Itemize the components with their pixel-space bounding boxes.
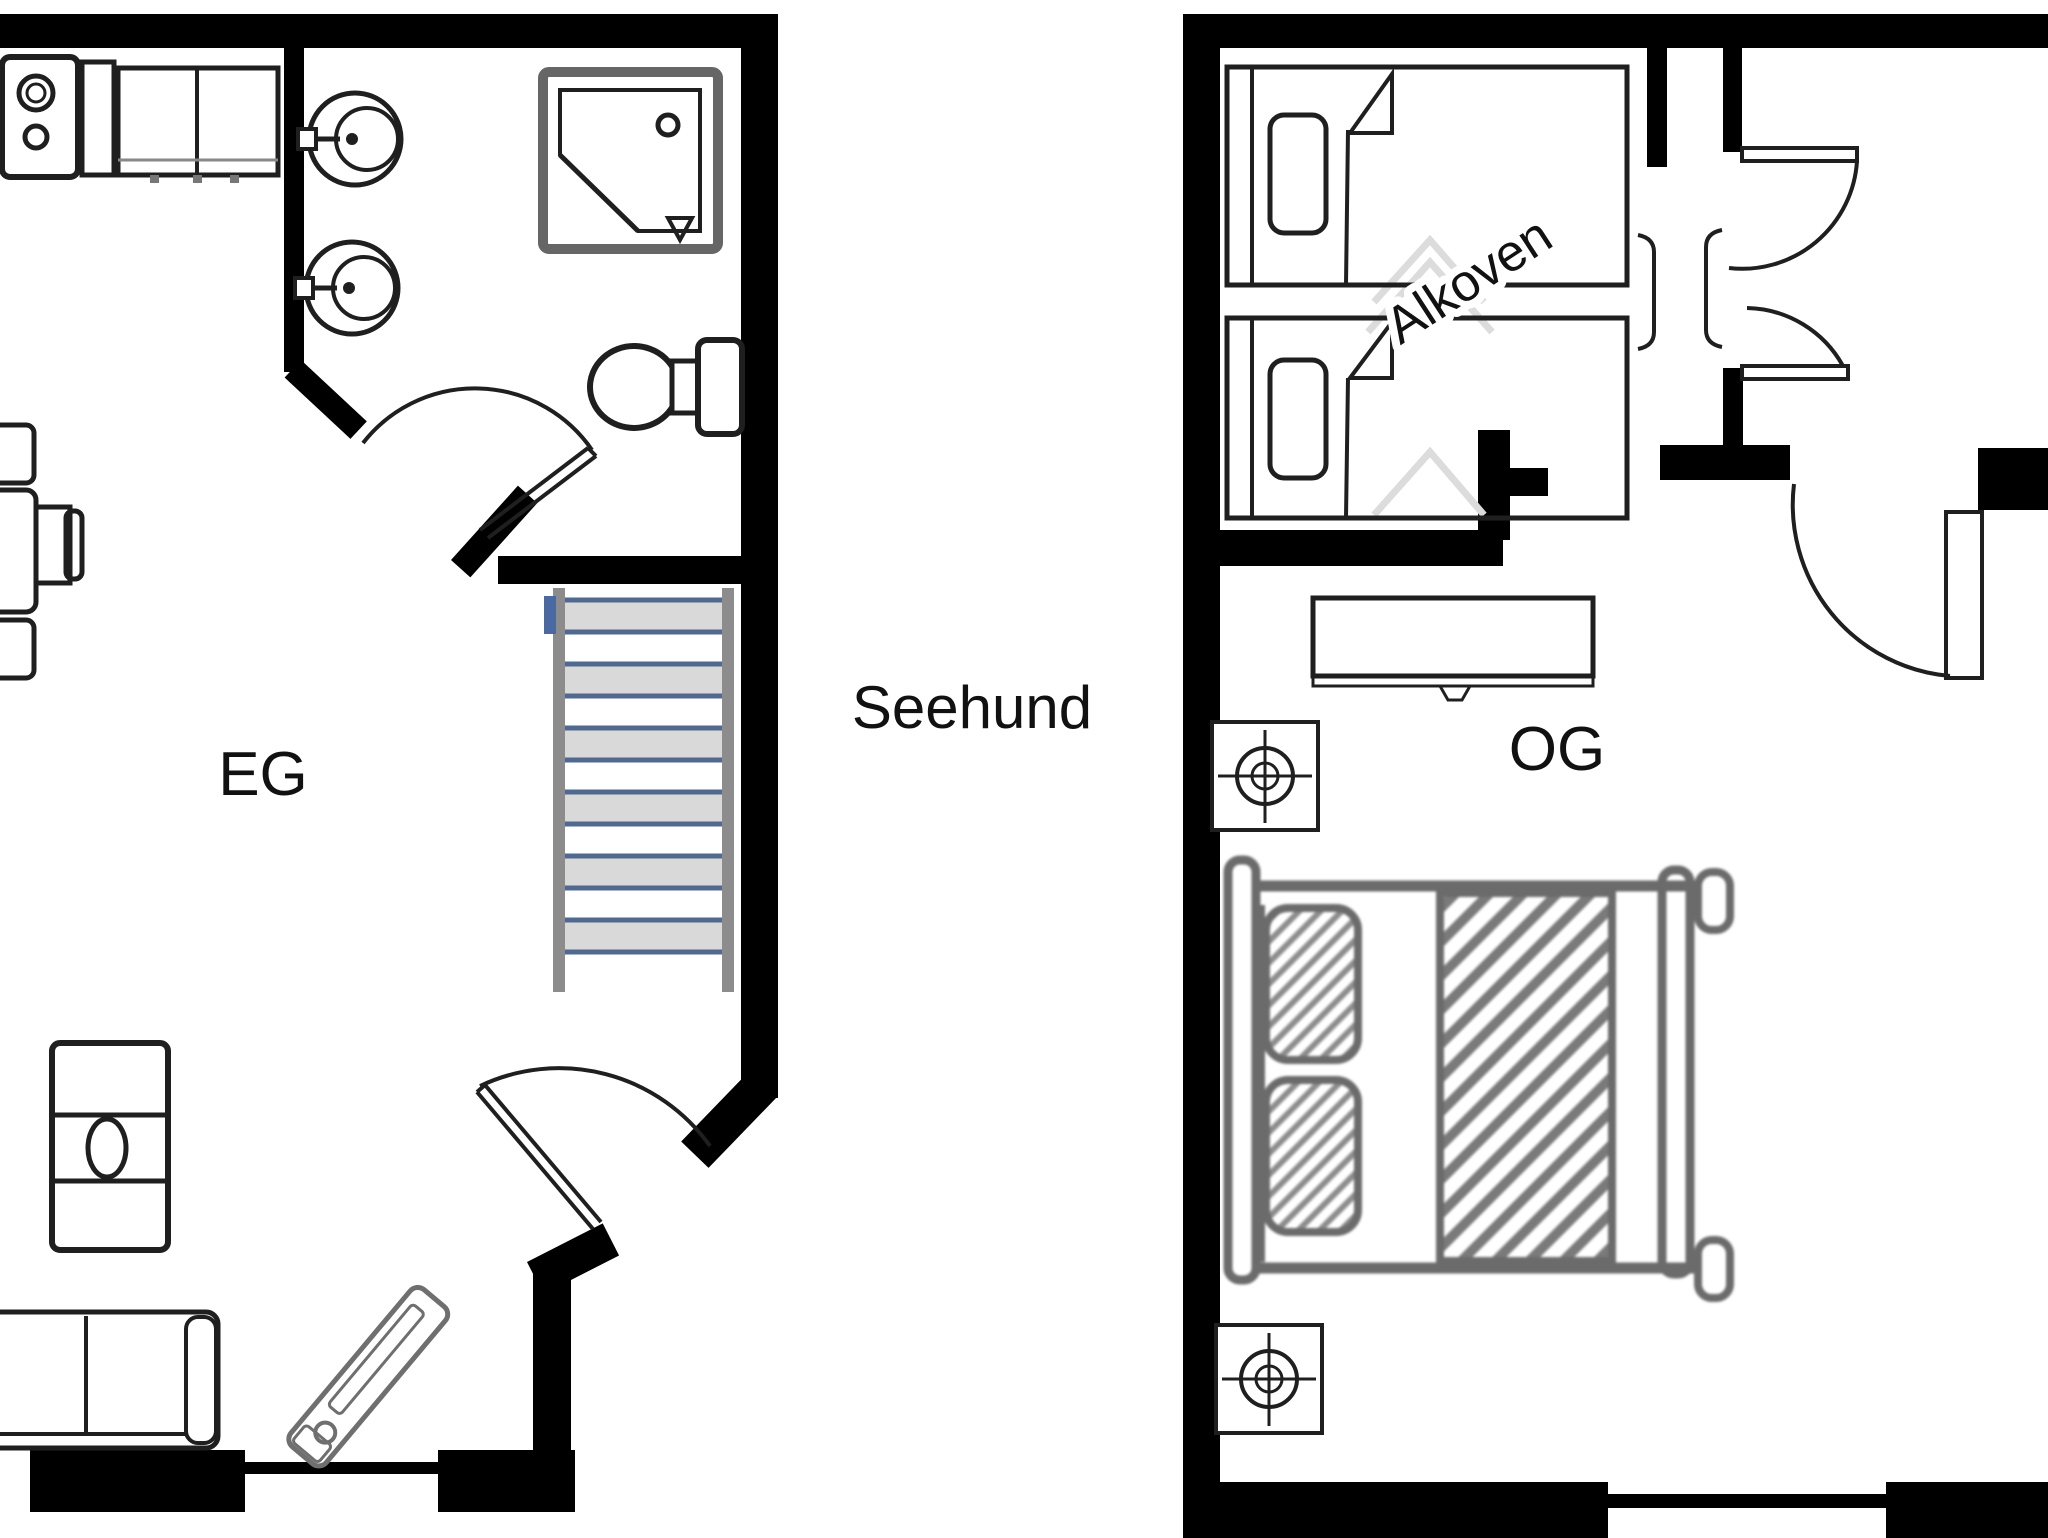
counter-foot [193,175,202,183]
eg-right-wall-chamfer [681,1070,778,1168]
dresser-foot [1440,686,1470,700]
door-swing-arc [1747,308,1843,366]
door-leaf [477,1092,593,1229]
door-swing-arc [363,388,592,450]
og-plan: OG Alkoven [1183,14,2048,1538]
ceiling-light-symbol-2 [1216,1325,1322,1433]
opening-frame-left [1638,235,1654,349]
eg-hall-wall [498,556,741,584]
og-entry-door [1793,484,1982,678]
shower [543,72,718,249]
eg-sideboard [285,1283,452,1470]
door-swing-arc [1729,161,1857,269]
eg-divider-wall [284,48,304,372]
blanket-fold-line [1346,378,1348,518]
eg-plan: EG [0,14,778,1512]
burner-small-icon [25,126,47,148]
og-bottom-window [1608,1494,1886,1508]
alcove-wall-jog-vertical [1478,430,1510,540]
eg-cabinet [52,1043,168,1250]
pillow [1266,1080,1358,1232]
hall-partition-stub-upper [1723,43,1742,152]
chair-top [0,425,34,483]
room-door-1 [1729,148,1857,269]
og-right-wall-piece [1978,448,2048,510]
burner-large-icon [19,76,53,110]
dining-table [0,490,36,612]
room-door-2 [1742,308,1848,379]
og-corner-block [1660,445,1790,480]
alcove-wall-jog-stub [1510,468,1548,496]
chair-right-back [66,511,82,579]
door-leaf [488,456,596,538]
alcove-label: Alkoven [1375,206,1562,355]
sofa-armrest [186,1317,216,1443]
og-bottom-wall-right [1886,1482,2048,1538]
stairs-steps [565,600,722,952]
burner-large-inner-icon [27,84,45,102]
pillow [1270,115,1326,233]
house-name-label: Seehund [852,674,1092,741]
stair-tread [565,856,722,888]
counter-foot [230,175,239,183]
eg-bottom-wall-left [30,1450,245,1512]
eg-bathroom [295,72,742,538]
washbasin-2 [295,242,398,334]
door-leaf [1742,148,1857,161]
stair-tread [565,600,722,632]
door-swing-arc [1793,484,1950,676]
stair-rail-left [553,588,565,992]
og-top-wall [1183,14,2048,48]
opening-frame-right [1706,230,1722,347]
door-leaf [485,1085,601,1222]
basin-drain-icon [343,282,355,294]
bed-headboard [1228,860,1256,1280]
counter-foot [150,175,159,183]
bed-footboard [1662,870,1690,1274]
stair-tread [565,664,722,696]
eg-floor-label: EG [218,740,308,809]
bathroom-door [363,388,596,538]
single-bed-1 [1227,67,1627,285]
eg-bottom-window [245,1462,438,1474]
staircase [544,588,734,992]
toilet [590,340,742,434]
eg-entry-wall [533,1268,571,1452]
pillow [1266,908,1358,1060]
stair-rail-right [722,588,734,992]
basin-drain-icon [346,133,358,145]
eg-sofa [0,1312,218,1448]
door-leaf [1946,512,1982,678]
bed-knob-bottom [1698,1240,1730,1298]
kitchen-counter-module-1 [82,62,114,175]
floorplan-canvas: EG Seehund [0,0,2048,1538]
door-leaf [1742,366,1848,379]
eg-right-wall [741,14,778,1098]
chair-bottom [0,620,34,678]
og-dresser [1313,598,1593,700]
stair-tread [565,792,722,824]
eg-entry-wall-chamfer [527,1223,619,1294]
ceiling-light-symbol-1 [1212,722,1318,830]
cabinet-handle-icon [88,1119,126,1177]
washbasin-1 [298,93,401,185]
blanket-fold-line [1346,130,1348,285]
stair-tread [565,920,722,952]
eg-top-wall [0,14,778,48]
bed-knob-top [1698,872,1730,930]
single-bed-2 [1227,318,1627,518]
entrance-door [477,1068,710,1229]
alcove-bottom-wall [1183,530,1503,566]
stair-tread [565,728,722,760]
og-bottom-wall-left [1183,1482,1608,1538]
alcove-right-wall-stub [1647,48,1667,167]
eg-dining [0,425,82,678]
duvet [1440,893,1612,1261]
eg-divider-wall-stub [285,360,367,439]
og-floor-label: OG [1509,715,1605,784]
pillow [1270,360,1326,478]
stair-start-marker [544,596,556,634]
eg-bottom-wall-right [438,1450,575,1512]
eg-kitchen [2,57,278,183]
door-leaf [480,448,588,530]
og-double-bed [1228,860,1730,1298]
og-upper-doors [1638,148,1857,379]
blanket-fold-corner [1350,74,1392,133]
